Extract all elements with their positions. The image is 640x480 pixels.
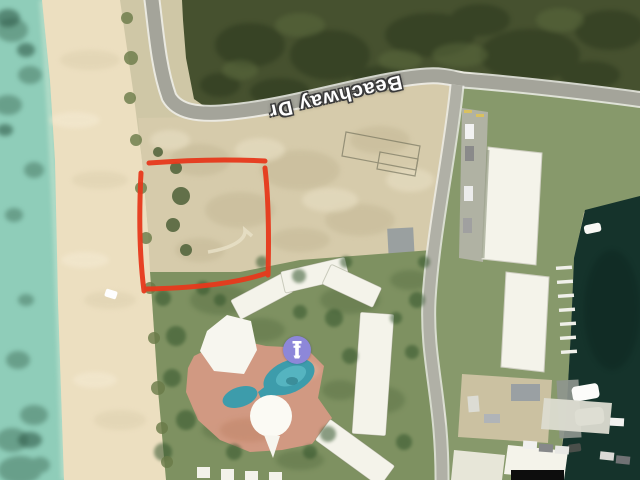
satellite-map-viewport[interactable]: Beachway Dr: [0, 0, 640, 480]
resort-poi-marker-icon[interactable]: [283, 336, 311, 364]
marker-glyph: [283, 336, 311, 364]
round-building: [250, 395, 292, 437]
condo-building-east: [482, 147, 542, 265]
annotation-top-stroke: [149, 160, 265, 163]
concrete-pad: [541, 398, 612, 434]
satellite-imagery: [0, 0, 640, 480]
dark-roof-band: [511, 470, 564, 480]
